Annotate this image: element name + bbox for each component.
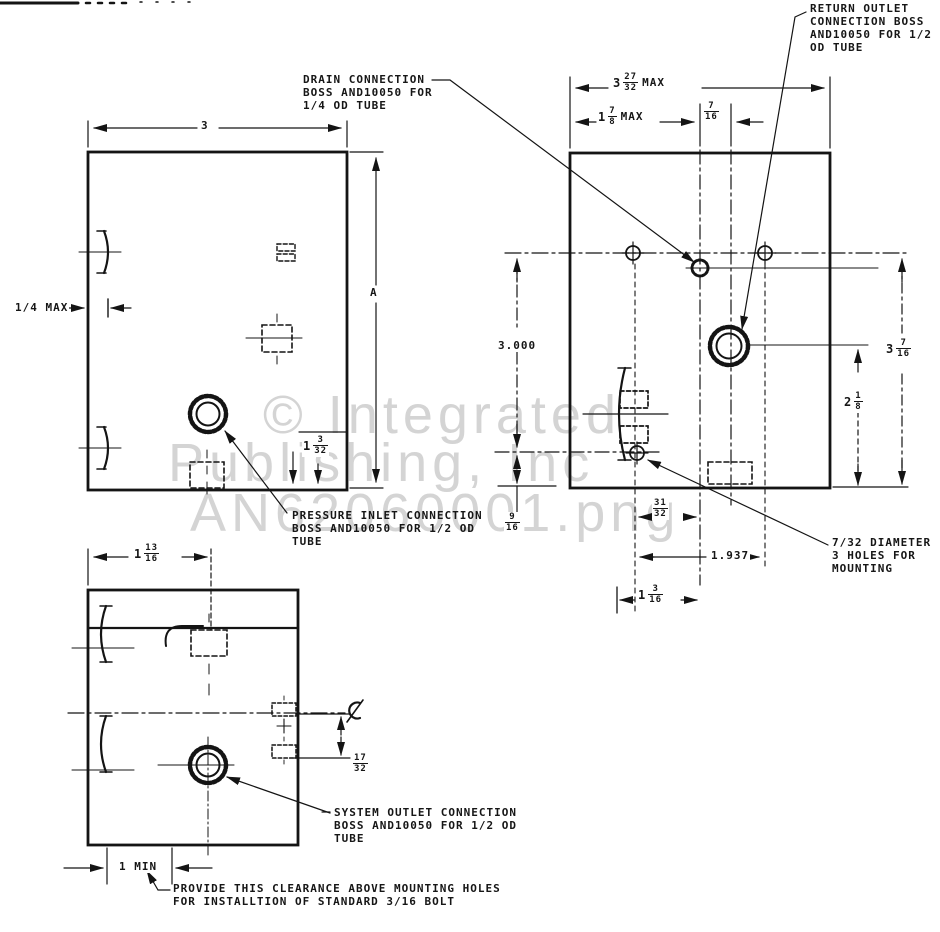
dim-top-width-max: 32732MAX (612, 72, 666, 94)
note-drain: DRAIN CONNECTION BOSS AND10050 FOR 1/4 O… (303, 73, 433, 112)
dim-boss-to-drain: 1316 (637, 584, 664, 606)
note-return-outlet: RETURN OUTLET CONNECTION BOSS AND10050 F… (810, 2, 932, 54)
dim-front-height: A (369, 286, 379, 299)
dim-clearance-min: 1 MIN (118, 860, 158, 873)
hidden-feature-small (277, 244, 295, 251)
mounting-hole-top-left (622, 242, 644, 264)
edge-boss-lower (79, 427, 121, 469)
mounting-hole-top-right (754, 242, 776, 264)
edge-boss-upper-side (72, 606, 134, 662)
dim-side-width: 11316 (133, 543, 160, 565)
note-pressure-inlet: PRESSURE INLET CONNECTION BOSS AND10050 … (292, 509, 483, 548)
clearance-note-leader (147, 871, 170, 890)
hidden-feature-right-side (272, 696, 296, 764)
dim-edge-offset-max: 1/4 MAX (14, 301, 69, 314)
dim-return-to-bottom: 218 (843, 391, 864, 413)
dim-drain-to-return: 716 (703, 101, 720, 123)
dim-hole-span-vertical: 3.000 (497, 339, 537, 352)
drawing-canvas (0, 0, 940, 932)
dim-hole-to-bottom-edge: 916 (504, 512, 521, 534)
dim-drain-offset-max: 178MAX (597, 106, 645, 128)
edge-boss-top-view (583, 368, 668, 460)
scan-artifact (0, 2, 195, 3)
scanned-engineering-drawing: © Integrated Publishing, Inc AN62060001.… (0, 0, 940, 932)
mounting-holes-leader (648, 460, 828, 545)
system-outlet-leader (227, 777, 330, 813)
pressure-inlet-boss (190, 396, 226, 432)
centerline-symbol (347, 700, 363, 722)
note-clearance: PROVIDE THIS CLEARANCE ABOVE MOUNTING HO… (173, 882, 501, 908)
drain-leader (432, 80, 694, 262)
pressure-inlet-leader (225, 431, 287, 513)
dim-outlet-drop: 1732 (352, 753, 369, 775)
dim-hole-to-drain: 3132 (652, 498, 669, 520)
edge-boss-lower-side (72, 716, 134, 772)
edge-boss-upper (79, 231, 121, 273)
dim-inlet-height: 1332 (302, 435, 329, 457)
front-view (60, 121, 383, 513)
hidden-port-top-side (191, 630, 227, 656)
note-system-outlet: SYSTEM OUTLET CONNECTION BOSS AND10050 F… (334, 806, 517, 845)
side-view (64, 549, 363, 890)
dim-hole-span-horizontal: 1.937 (710, 549, 750, 562)
return-outlet-leader (742, 12, 806, 329)
dim-front-width: 3 (200, 119, 210, 132)
hidden-port-top-view (708, 462, 752, 484)
dim-top-height: 3716 (885, 338, 912, 360)
return-outlet-boss (710, 327, 748, 365)
note-mounting-holes: 7/32 DIAMETER 3 HOLES FOR MOUNTING (832, 536, 931, 575)
